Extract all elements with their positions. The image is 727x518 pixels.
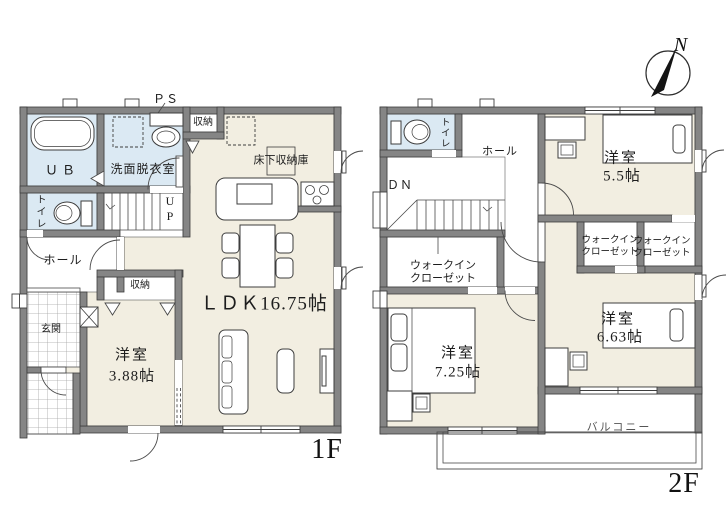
door-arc-bedroom-south xyxy=(130,433,158,461)
label-wic-left-1: ウォークイン xyxy=(581,236,638,246)
label-underfloor-storage: 床下収納庫 xyxy=(254,156,309,167)
tv xyxy=(322,356,326,386)
door-leaf-washroom xyxy=(176,156,183,187)
label-entrance: 玄関 xyxy=(41,325,61,335)
label-stairs-up: UP xyxy=(164,194,176,224)
label-north: N xyxy=(674,35,688,55)
label-hall-2f: ホール xyxy=(482,147,518,158)
toilet-tank-2f xyxy=(391,121,401,144)
room-stairs-2f xyxy=(387,157,505,237)
door-leaf-663 xyxy=(538,222,545,262)
label-ub: ＵＢ xyxy=(45,164,79,177)
label-balcony: バルコニー xyxy=(587,423,652,434)
door-leaf-entrance xyxy=(41,367,66,373)
label-bedroom-55-name: 洋室 xyxy=(604,152,638,167)
ps-shelf xyxy=(150,113,183,126)
label-ps: ＰＳ xyxy=(153,93,179,105)
label-bedroom-663-size: 6.63帖 xyxy=(597,331,643,346)
label-wic-right-2: クローゼット xyxy=(633,249,690,259)
label-bedroom-663-name: 洋室 xyxy=(601,313,635,328)
label-hall-1f: ホール xyxy=(43,254,82,266)
label-floor1: 1F xyxy=(311,436,343,464)
label-washroom: 洗面脱衣室 xyxy=(110,163,175,175)
floorplan-page: ＵＢ 洗面脱衣室 ＰＳ 収納 床下収納庫 トイレ UP ホール 玄関 収納 洋室… xyxy=(0,0,727,518)
pillow-725-b xyxy=(391,344,407,371)
window-north-toilet-2f xyxy=(418,99,432,107)
label-stairs-dn: ＤＮ xyxy=(387,179,413,191)
label-wic-right-1: ウォークイン xyxy=(633,237,690,247)
label-wic-left-2: クローゼット xyxy=(581,248,638,258)
sofa xyxy=(219,330,248,414)
desk-725 xyxy=(387,391,412,421)
pillow-663 xyxy=(670,309,683,341)
pillow-725-a xyxy=(391,314,407,341)
label-bedroom-1f-size: 3.88帖 xyxy=(109,370,155,385)
entrance-step xyxy=(27,288,80,292)
desk-55 xyxy=(545,117,585,140)
kitchen-sink xyxy=(237,184,272,204)
stove xyxy=(301,182,334,206)
floorplan-drawing xyxy=(0,0,727,518)
label-bedroom-725-name: 洋室 xyxy=(441,347,475,362)
label-wic-main-2: クローゼット xyxy=(410,274,476,285)
pillow-55 xyxy=(673,125,685,153)
label-bedroom-55-size: 5.5帖 xyxy=(603,170,641,185)
label-toilet-1f: トイレ xyxy=(34,194,44,230)
label-bedroom-1f-name: 洋室 xyxy=(115,349,149,364)
dining-chair xyxy=(222,258,239,278)
label-ldk: ＬＤＫ16.75帖 xyxy=(200,295,328,314)
balcony-extension xyxy=(437,433,702,469)
label-wic-main-1: ウォークイン xyxy=(410,261,476,272)
floor1-plan xyxy=(12,99,363,461)
window-north-a xyxy=(63,99,77,107)
label-storage-kitchen: 収納 xyxy=(193,118,213,128)
dining-chair xyxy=(276,258,293,278)
dining-chair xyxy=(276,233,293,253)
washbasin xyxy=(152,127,180,147)
label-floor2: 2F xyxy=(668,470,700,498)
dining-table xyxy=(240,225,275,287)
desk-663 xyxy=(545,348,568,386)
coffee-table xyxy=(277,349,294,393)
dining-chair xyxy=(222,233,239,253)
toilet-bowl-1f xyxy=(54,202,80,224)
label-toilet-2f: トイレ xyxy=(438,117,448,149)
label-bedroom-725-size: 7.25帖 xyxy=(435,366,481,381)
window-north-hall-2f xyxy=(480,99,494,107)
window-north-b xyxy=(125,99,139,107)
toilet-bowl-2f xyxy=(404,120,430,144)
door-leaf-55 xyxy=(538,183,545,215)
toilet-tank-1f xyxy=(81,201,92,226)
label-bedroom-closet: 収納 xyxy=(130,281,150,291)
